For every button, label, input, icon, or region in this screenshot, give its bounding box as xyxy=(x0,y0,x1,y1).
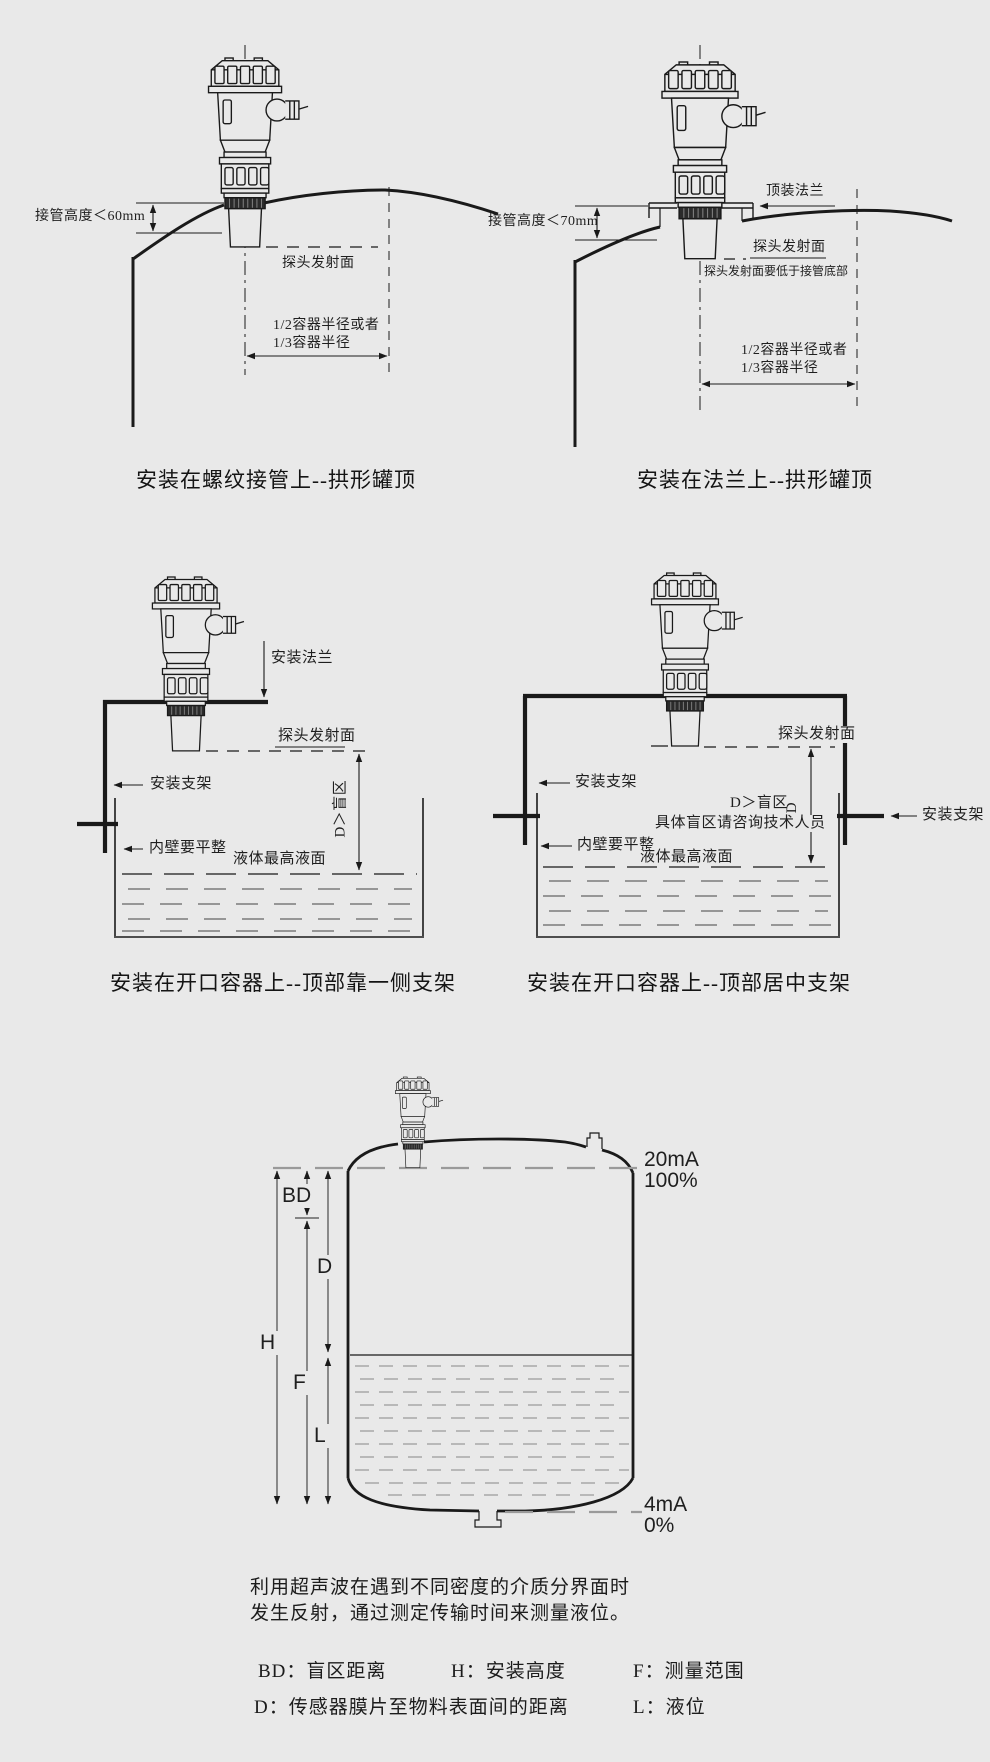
ml-blind-zone-label: D＞盲区 xyxy=(332,780,349,838)
ml-bracket-label: 安装支架 xyxy=(150,776,212,793)
ml-probe-surface-label: 探头发射面 xyxy=(275,728,359,745)
liquid xyxy=(543,867,833,925)
diagram-measurement-principle xyxy=(273,1077,642,1527)
mr-blind-note-label: 具体盲区请咨询技术人员 xyxy=(652,815,829,832)
tr-radius-label-1: 1/2容器半径或者 xyxy=(741,343,847,359)
dim-d-label: D xyxy=(314,1255,335,1279)
tl-probe-surface-label: 探头发射面 xyxy=(279,256,358,272)
output-100pct-label: 100% xyxy=(644,1169,698,1193)
tl-radius-label-1: 1/2容器半径或者 xyxy=(273,318,379,334)
legend-h: H：安装高度 xyxy=(451,1656,566,1683)
installation-instructions-sheet: 接管高度＜60mm 探头发射面 1/2容器半径或者 1/3容器半径 安装在螺纹接… xyxy=(0,0,990,1762)
diagram-open-vessel-side-bracket xyxy=(77,577,424,937)
tank-outline xyxy=(348,1139,633,1511)
mr-caption: 安装在开口容器上--顶部居中支架 xyxy=(527,967,851,997)
diagram-open-vessel-center-bracket xyxy=(493,573,917,937)
tl-radius-label-2: 1/3容器半径 xyxy=(273,336,350,352)
ml-max-level-label: 液体最高液面 xyxy=(230,851,329,868)
legend-bd: BD：盲区距离 xyxy=(258,1656,386,1683)
principle-description: 利用超声波在遇到不同密度的介质分界面时 发生反射，通过测定传输时间来测量液位。 xyxy=(250,1575,630,1627)
ml-mount-flange-label: 安装法兰 xyxy=(271,650,333,667)
tl-caption: 安装在螺纹接管上--拱形罐顶 xyxy=(136,464,416,494)
mr-blind-zone-label: D＞盲区 xyxy=(727,795,791,812)
tank-dome-outline xyxy=(133,190,498,427)
mr-dim-d-label: D xyxy=(784,802,801,813)
principle-description-line2: 发生反射，通过测定传输时间来测量液位。 xyxy=(250,1601,630,1627)
legend-l: L：液位 xyxy=(633,1692,706,1719)
tr-probe-note-label: 探头发射面要低于接管底部 xyxy=(704,265,848,279)
dim-f-label: F xyxy=(290,1371,309,1395)
dim-l-label: L xyxy=(311,1424,329,1448)
dimension-lines xyxy=(277,1171,328,1504)
tr-pipe-height-label: 接管高度＜70mm xyxy=(488,214,598,230)
dim-h-label: H xyxy=(257,1331,278,1355)
ml-caption: 安装在开口容器上--顶部靠一侧支架 xyxy=(110,967,456,997)
tr-radius-label-2: 1/3容器半径 xyxy=(741,361,818,377)
legend-f: F：测量范围 xyxy=(633,1656,745,1683)
diagram-threaded-nozzle-dome xyxy=(133,45,498,427)
liquid xyxy=(122,874,417,931)
tl-pipe-height-label: 接管高度＜60mm xyxy=(35,209,145,225)
principle-description-line1: 利用超声波在遇到不同密度的介质分界面时 xyxy=(250,1575,630,1601)
mr-max-level-label: 液体最高液面 xyxy=(637,849,736,866)
tr-top-flange-label: 顶装法兰 xyxy=(766,184,824,200)
tr-probe-surface-label: 探头发射面 xyxy=(750,240,829,256)
legend-d: D：传感器膜片至物料表面间的距离 xyxy=(254,1692,569,1719)
mr-probe-surface-label: 探头发射面 xyxy=(775,726,859,743)
output-0pct-label: 0% xyxy=(644,1514,674,1538)
ml-wall-note-label: 内壁要平整 xyxy=(149,840,227,857)
tank-top-nozzle xyxy=(587,1133,602,1149)
liquid xyxy=(355,1366,629,1495)
mr-bracket-right-label: 安装支架 xyxy=(922,807,984,824)
tr-caption: 安装在法兰上--拱形罐顶 xyxy=(637,464,873,494)
dim-bd-label: BD xyxy=(279,1184,314,1208)
mr-bracket-left-label: 安装支架 xyxy=(575,774,637,791)
tank-bottom-outlet xyxy=(475,1511,501,1527)
